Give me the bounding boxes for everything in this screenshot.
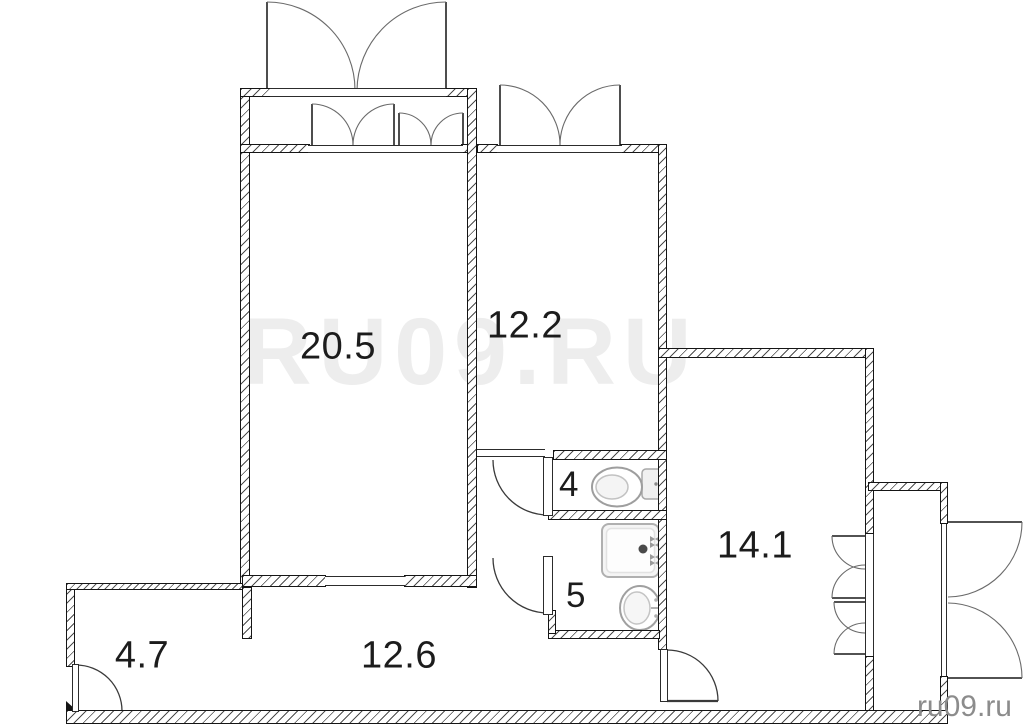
wall-entry-hall-stub xyxy=(242,587,252,639)
wall-bedroom-kitchen xyxy=(658,144,667,650)
shower-drain xyxy=(639,545,648,554)
room-label-bathroom: 5 xyxy=(566,576,586,616)
floorplan-canvas: RU09.RU xyxy=(0,0,1024,727)
room-label-entry: 4.7 xyxy=(115,635,169,678)
wc-door-leaf xyxy=(543,457,553,516)
sink-inner xyxy=(624,592,650,624)
bath-door-arc xyxy=(493,558,548,613)
window-sill-bedroom xyxy=(497,145,622,153)
opening-living-hall xyxy=(325,576,405,586)
wall-living-bottom-right xyxy=(404,575,477,587)
wall-bedroom-top-left xyxy=(477,144,498,153)
window-arc xyxy=(357,2,446,90)
window-arc xyxy=(832,536,865,569)
wall-left-upper xyxy=(240,88,250,588)
window-arc xyxy=(312,104,353,145)
wall-balcony2-top xyxy=(868,482,948,491)
room-label-hallway: 12.6 xyxy=(361,635,437,678)
toilet-bowl-inner xyxy=(596,475,628,499)
window-arc xyxy=(500,85,560,145)
room-label-living: 20.5 xyxy=(300,326,376,369)
window-arc xyxy=(834,623,865,654)
wall-bottom xyxy=(66,710,948,724)
wc-door-arc xyxy=(493,460,548,515)
window-arc xyxy=(948,603,1022,678)
wall-left-lower xyxy=(66,583,75,667)
window-arc xyxy=(353,104,394,145)
entry-door-leaf xyxy=(72,664,79,712)
wall-bath-bottom xyxy=(548,630,660,639)
wall-kitchen-east-lower xyxy=(865,656,874,714)
window-arc xyxy=(399,113,431,145)
window-arc xyxy=(267,2,355,90)
wall-balcony-top-left xyxy=(240,88,273,97)
kitchen-door-arc xyxy=(667,650,718,701)
wall-kitchen-top xyxy=(658,348,873,358)
opening-bedroom-corridor xyxy=(477,449,545,457)
shower-tray-inner xyxy=(607,529,655,573)
window-arc xyxy=(832,565,865,598)
window-arc xyxy=(560,85,620,145)
wall-wc-bath xyxy=(548,510,667,520)
wall-living-top-left xyxy=(240,144,310,153)
window-arc xyxy=(431,113,463,145)
window-sill-balcony2-outer xyxy=(941,524,947,676)
site-credit: ru09.ru xyxy=(917,690,1012,724)
wall-entry-top xyxy=(66,583,244,590)
kitchen-door-jamb xyxy=(660,649,668,702)
room-label-kitchen: 14.1 xyxy=(717,525,793,568)
room-label-wc: 4 xyxy=(559,465,579,505)
window-sill-balcony-outer xyxy=(270,88,446,97)
wall-living-bottom-left xyxy=(242,575,326,587)
room-label-bedroom: 12.2 xyxy=(487,305,563,348)
wall-living-bedroom-divider xyxy=(467,88,477,588)
wall-kitchen-east-upper xyxy=(865,348,874,534)
wall-wc-top xyxy=(553,450,667,460)
wall-balcony2-east-upper xyxy=(940,482,948,524)
window-sill-kitchen-balcony xyxy=(865,534,874,656)
window-sill-living-balcony xyxy=(308,145,463,153)
window-arc xyxy=(834,602,865,633)
bath-door-leaf xyxy=(543,556,553,615)
window-arc xyxy=(948,522,1022,597)
